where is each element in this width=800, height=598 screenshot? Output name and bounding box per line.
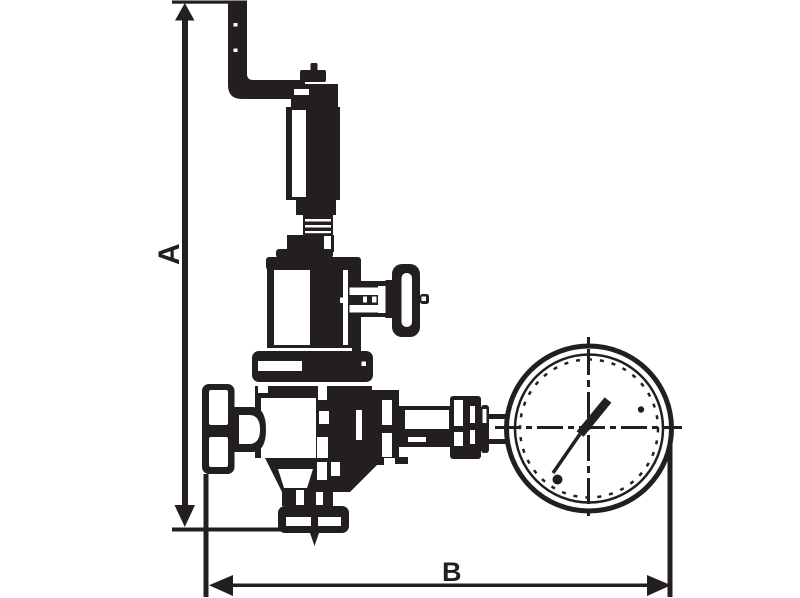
svg-text:B: B xyxy=(442,557,462,587)
svg-text:A: A xyxy=(153,243,186,265)
